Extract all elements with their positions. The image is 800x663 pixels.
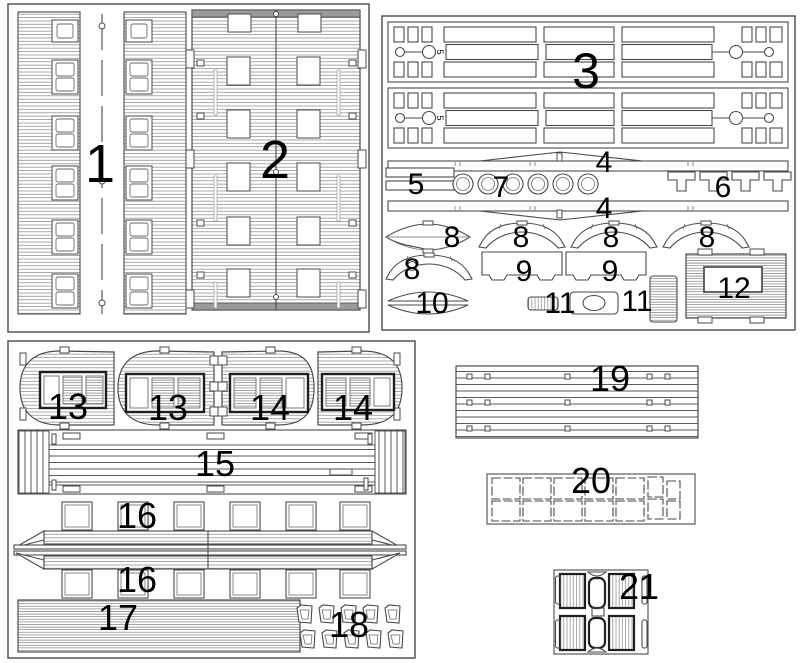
part-16-label-b: 16 (117, 559, 157, 600)
part-2-label: 2 (260, 130, 290, 190)
part-11-label-a: 11 (544, 287, 575, 320)
part-20-label: 20 (571, 460, 611, 501)
part-7-label: 7 (493, 171, 510, 204)
part-17: 17 (18, 597, 300, 652)
part-13-b: 13 (118, 347, 219, 429)
part-3-label: 3 (572, 43, 600, 99)
part-9-label-a: 9 (516, 255, 533, 288)
part-18-label: 18 (329, 604, 369, 645)
parts-diagram-page: 1 (0, 0, 800, 663)
part-5-label: 5 (408, 168, 425, 201)
part-3-strip-mark-b: 5 (435, 115, 445, 120)
sheet-b: 5 5 3 4 4 (382, 16, 795, 330)
part-20: 20 (487, 460, 695, 524)
part-14-a: 14 (218, 347, 314, 429)
part-1-label: 1 (85, 134, 115, 194)
part-12-label: 12 (717, 272, 750, 305)
part-17-label: 17 (98, 597, 138, 638)
part-3-strip-mark-a: 5 (435, 49, 445, 54)
part-14-label-b: 14 (333, 387, 373, 428)
part-13-label-b: 13 (148, 387, 188, 428)
part-4-label-a: 4 (596, 146, 613, 179)
part-15: 15 (18, 430, 406, 494)
part-8-label-e: 8 (404, 253, 421, 286)
part-6-label: 6 (715, 171, 732, 204)
part-9-label-b: 9 (602, 255, 619, 288)
part-8-label-a: 8 (444, 221, 461, 254)
part-11-label-b: 11 (621, 285, 652, 318)
part-13-label-a: 13 (48, 386, 88, 427)
sheet-a: 1 (8, 4, 369, 332)
sheet-c: 13 13 14 (8, 341, 415, 658)
part-13-a: 13 (20, 347, 114, 429)
part-14-label-a: 14 (250, 387, 290, 428)
part-10-label: 10 (415, 287, 448, 320)
part-15-label: 15 (195, 443, 235, 484)
part-2: 2 (186, 10, 366, 310)
part-12: 12 (686, 249, 786, 323)
part-19-label: 19 (590, 358, 630, 399)
parts-diagram: 1 (0, 0, 800, 663)
part-16-label-a: 16 (117, 495, 157, 536)
part-21: 21 (554, 566, 659, 654)
part-8-label-c: 8 (603, 221, 620, 254)
part-8-label-b: 8 (513, 221, 530, 254)
part-19: 19 (456, 358, 698, 438)
part-14-b: 14 (318, 347, 402, 429)
part-21-label: 21 (619, 566, 659, 607)
